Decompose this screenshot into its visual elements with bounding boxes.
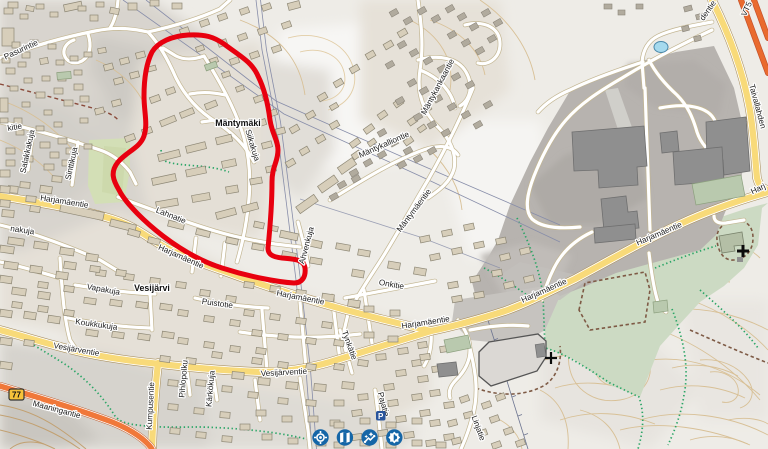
svg-text:Vesijärvi: Vesijärvi xyxy=(134,283,170,293)
svg-text:77: 77 xyxy=(12,391,21,400)
svg-text:P: P xyxy=(378,412,384,421)
svg-text:Mäntymäki: Mäntymäki xyxy=(215,118,260,128)
